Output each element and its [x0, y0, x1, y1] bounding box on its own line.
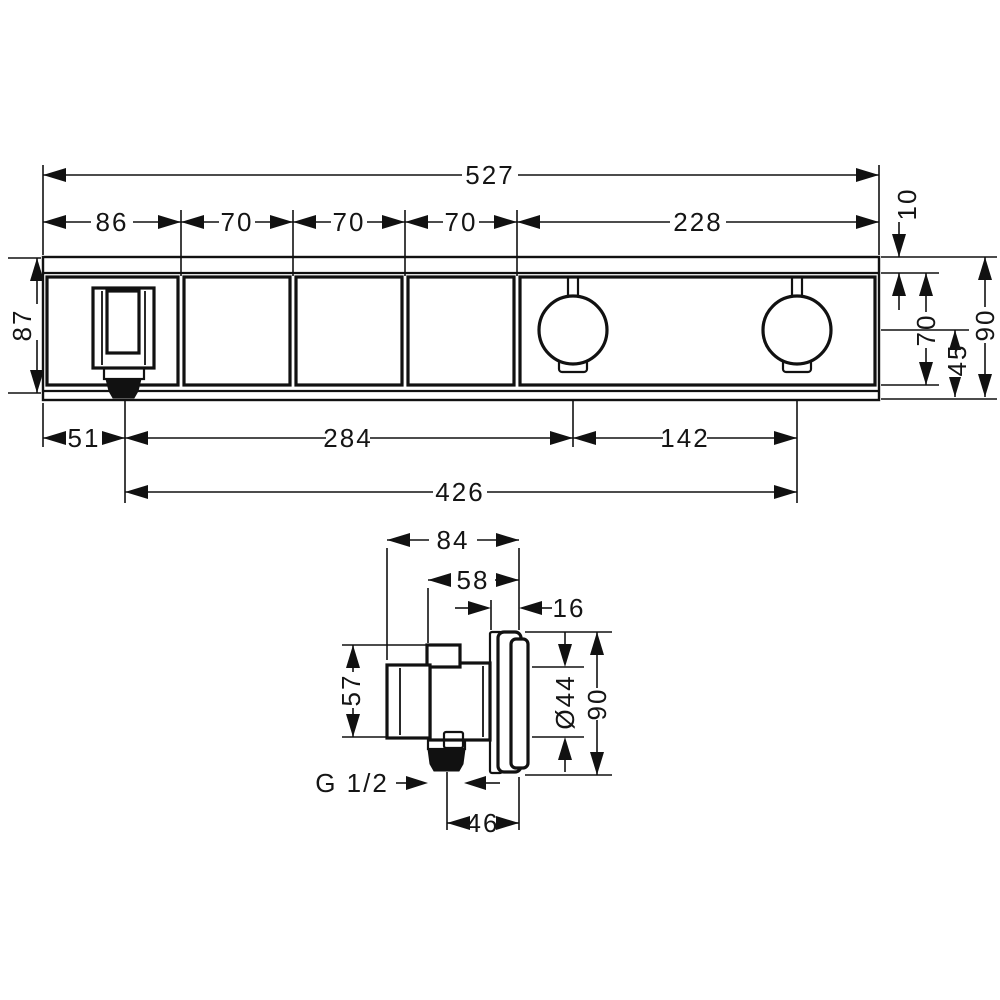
dim-segment-chain: 86 70 70 70 228 [43, 207, 879, 237]
dim-label-rosette-depth: 16 [553, 593, 586, 623]
dim-label-segment-86: 86 [96, 207, 129, 237]
dim-label-inner-height: 70 [911, 314, 941, 347]
dim-label-outlet-to-face: 46 [467, 808, 500, 838]
dim-hub-diameter: Ø44 [532, 632, 584, 772]
dim-label-segment-70b: 70 [333, 207, 366, 237]
dim-label-spout-to-knob2: 426 [435, 477, 484, 507]
dim-strip-height: 10 [892, 188, 922, 310]
thread-label: G 1/2 [315, 768, 389, 798]
dim-knob-center-to-bottom: 45 [942, 330, 972, 397]
dim-label-total-depth: 84 [437, 525, 470, 555]
dim-total-height: 90 [970, 257, 1000, 397]
spout-face [107, 291, 139, 353]
front-view: 527 86 70 70 70 228 10 [7, 160, 1000, 507]
side-view: 84 58 16 57 Ø44 [315, 525, 612, 838]
dim-inner-height: 70 [911, 273, 941, 385]
thread-callout: G 1/2 [315, 768, 500, 798]
valve-top-step [427, 645, 460, 667]
dim-label-hub-diameter: Ø44 [550, 674, 580, 729]
dim-label-segment-228: 228 [673, 207, 722, 237]
dim-total-width: 527 [43, 160, 879, 190]
dim-rosette-depth: 16 [455, 593, 585, 623]
dim-label-total-height: 90 [970, 309, 1000, 342]
dim-label-spout-offset: 51 [68, 423, 101, 453]
dim-label-body-depth: 58 [457, 565, 490, 595]
outlet-thread [428, 749, 465, 771]
dim-label-strip-height: 10 [892, 188, 922, 221]
drawing-canvas: 527 86 70 70 70 228 10 [0, 0, 1000, 1000]
knob-2-dial [763, 296, 831, 364]
dim-bottom-chain: 51 284 142 [43, 423, 797, 453]
dim-label-knob-spacing: 142 [660, 423, 709, 453]
dim-label-rosette-diameter: 90 [582, 688, 612, 721]
dim-label-body-height: 57 [336, 674, 366, 707]
dim-label-total-width: 527 [465, 160, 514, 190]
dim-body-depth: 58 [428, 565, 519, 595]
technical-drawing: 527 86 70 70 70 228 10 [0, 0, 1000, 1000]
section-box-4 [408, 277, 514, 385]
spout-outlet-nub [106, 379, 141, 398]
dim-left-height: 87 [7, 258, 44, 393]
dim-label-left-height: 87 [7, 309, 37, 342]
section-box-3 [296, 277, 402, 385]
knob-1-dial [539, 296, 607, 364]
rosette-sleeve [511, 639, 528, 768]
dim-spout-to-knob2: 426 [125, 477, 797, 507]
dim-label-spout-to-knob1: 284 [323, 423, 372, 453]
dim-label-segment-70a: 70 [221, 207, 254, 237]
valve-body [430, 663, 490, 740]
section-box-2 [184, 277, 290, 385]
dim-label-knob-center-to-bottom: 45 [942, 344, 972, 377]
dim-total-depth: 84 [387, 525, 519, 555]
dim-label-segment-70c: 70 [445, 207, 478, 237]
valve-back-block [387, 665, 430, 738]
